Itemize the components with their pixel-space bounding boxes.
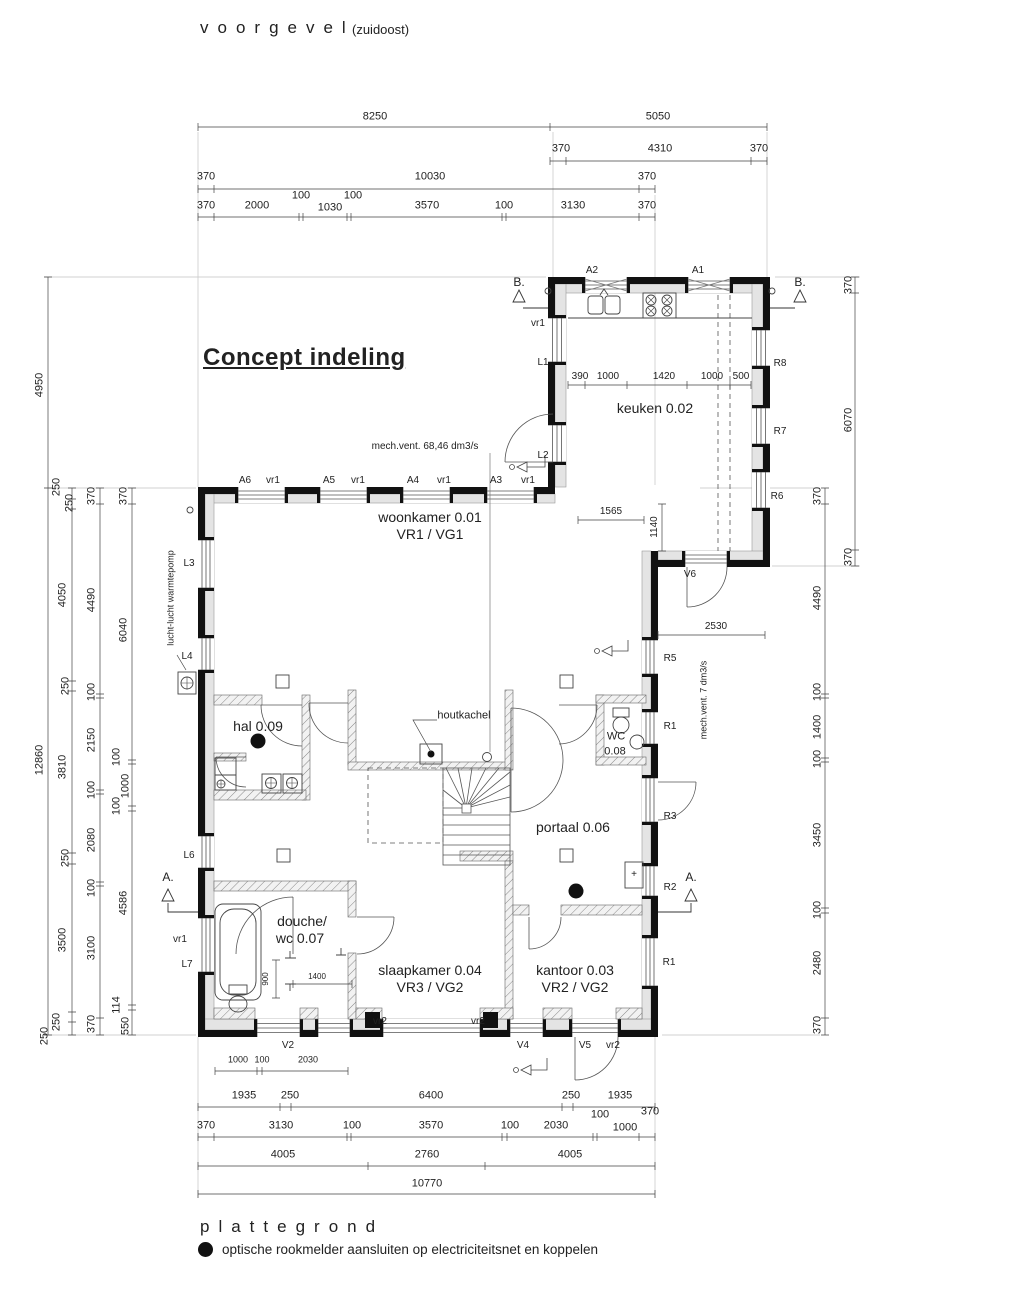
dim-label: 1935 (232, 1091, 256, 1102)
room-label-kantoor-sub: VR2 / VG2 (542, 980, 609, 994)
wc-toilet (613, 708, 644, 749)
dim-label: 250 (40, 1027, 51, 1045)
annotation-houtkachel: houtkachel (437, 711, 490, 722)
window-label: L4 (181, 652, 192, 662)
room-label-woonkamer: woonkamer 0.01 (378, 510, 482, 524)
dim-label: 100 (495, 201, 513, 212)
plus-box-label: + (631, 870, 637, 880)
window-label: A1 (692, 266, 704, 276)
dim-label: 1000 (613, 1123, 637, 1134)
window-label: R2 (664, 883, 677, 893)
dim-label: 100 (813, 901, 824, 919)
vent-label: vr1 (521, 476, 535, 486)
dim-label: 370 (87, 1015, 98, 1033)
room-label-slaapkamer-sub: VR3 / VG2 (397, 980, 464, 994)
vent-label: vr2 (606, 1041, 620, 1051)
smoke-detector-legend-icon (198, 1242, 213, 1257)
dim-label: 114 (112, 996, 123, 1014)
dim-label: 2150 (87, 728, 98, 752)
dim-label: 1565 (600, 507, 622, 517)
dim-label: 500 (733, 372, 750, 382)
dim-label: 4005 (558, 1150, 582, 1161)
dim-label: 1935 (608, 1091, 632, 1102)
dim-label: 100 (87, 683, 98, 701)
dim-label: 1140 (650, 516, 660, 538)
legend-row: optische rookmelder aansluiten op electr… (198, 1242, 598, 1257)
dim-label: 4950 (35, 373, 46, 397)
dim-label: 250 (562, 1091, 580, 1102)
section-marker-label: B. (794, 276, 805, 288)
dim-label: 2480 (813, 951, 824, 975)
dim-label: 1400 (813, 715, 824, 739)
shower-fittings (285, 948, 346, 991)
dim-label: 1000 (597, 372, 619, 382)
dim-label: 250 (281, 1091, 299, 1102)
vent-label: vr2 (373, 1017, 387, 1027)
dim-label: 900 (262, 972, 270, 985)
vent-label: vr1 (266, 476, 280, 486)
room-label-keuken: keuken 0.02 (617, 401, 693, 415)
annotation-heatpump: lucht-lucht warmtepomp (167, 550, 176, 646)
dim-label: 100 (87, 879, 98, 897)
dim-label: 6400 (419, 1091, 443, 1102)
vent-label: vr2 (471, 1017, 485, 1027)
dim-label: 100 (112, 797, 123, 815)
vent-label: vr1 (173, 935, 187, 945)
dim-label: 1000 (701, 372, 723, 382)
window-label: R5 (664, 654, 677, 664)
dim-label: 2530 (705, 622, 727, 632)
bathtub (215, 904, 261, 1000)
facade-title: voorgevel (200, 18, 355, 38)
plan-title: plattegrond (200, 1217, 384, 1237)
floorplan-drawing (0, 0, 1024, 1302)
kitchen-stove (643, 293, 676, 318)
dim-label: 370 (750, 144, 768, 155)
dim-label: 370 (197, 172, 215, 183)
section-marker-label: B. (513, 276, 524, 288)
dim-label: 100 (813, 750, 824, 768)
dim-label: 370 (119, 487, 130, 505)
room-label-douche-sub: wc 0.07 (276, 931, 324, 945)
dim-label: 10770 (412, 1179, 443, 1190)
vent-label: vr1 (437, 476, 451, 486)
dim-label: 250 (52, 478, 63, 496)
dim-label: 2760 (415, 1150, 439, 1161)
window-label: R8 (774, 359, 787, 369)
annotation-mech-vent: mech.vent. 7 dm3/s (700, 661, 709, 740)
dim-label: 5050 (646, 112, 670, 123)
window-label: L3 (183, 559, 194, 569)
dim-label: 100 (254, 1056, 269, 1065)
dim-label: 250 (52, 1013, 63, 1031)
window-label: L2 (537, 451, 548, 461)
wood-stove (413, 720, 492, 764)
window-label: R1 (664, 722, 677, 732)
dim-label: 3810 (58, 755, 69, 779)
concept-title: Concept indeling (203, 344, 406, 372)
dim-label: 3130 (561, 201, 585, 212)
dim-label: 370 (641, 1107, 659, 1118)
smoke-detectors (251, 734, 584, 899)
window-label: A2 (586, 266, 598, 276)
dim-label: 550 (121, 1017, 132, 1035)
dim-label: 3100 (87, 936, 98, 960)
window-label: A4 (407, 476, 419, 486)
facade-subtitle: (zuidoost) (352, 22, 409, 37)
dim-label: 370 (552, 144, 570, 155)
section-markers (162, 290, 806, 912)
dim-label: 6040 (119, 618, 130, 642)
dim-label: 2030 (298, 1056, 318, 1065)
vent-label: vr1 (351, 476, 365, 486)
vent-label: vr1 (531, 319, 545, 329)
window-label: R3 (664, 812, 677, 822)
dim-label: 100 (292, 191, 310, 202)
room-label-kantoor: kantoor 0.03 (536, 963, 614, 977)
section-marker-label: A. (162, 871, 173, 883)
dim-label: 370 (197, 1121, 215, 1132)
room-label-hal: hal 0.09 (233, 719, 283, 733)
room-label-wc-sub: 0.08 (604, 747, 625, 758)
room-label-wc: WC (607, 732, 625, 743)
window-label: A3 (490, 476, 502, 486)
dim-label: 100 (87, 781, 98, 799)
window-label: L1 (537, 358, 548, 368)
dim-label: 1000 (228, 1056, 248, 1065)
section-marker-label: A. (685, 871, 696, 883)
dim-label: 370 (813, 487, 824, 505)
dim-label: 3500 (58, 928, 69, 952)
window-label: R1 (663, 958, 676, 968)
dim-label: 2080 (87, 828, 98, 852)
room-label-woonkamer-sub: VR1 / VG1 (397, 527, 464, 541)
dim-label: 4005 (271, 1150, 295, 1161)
window-label: V6 (684, 570, 696, 580)
dim-label: 12860 (35, 745, 46, 776)
dim-label: 3130 (269, 1121, 293, 1132)
dim-label: 3450 (813, 823, 824, 847)
room-label-portaal: portaal 0.06 (536, 820, 610, 834)
dim-label: 370 (638, 172, 656, 183)
dim-label: 250 (65, 494, 76, 512)
dim-label: 390 (572, 372, 589, 382)
dim-label: 100 (813, 683, 824, 701)
dim-label: 3570 (415, 201, 439, 212)
dim-label: 370 (844, 276, 855, 294)
dim-label: 8250 (363, 112, 387, 123)
window-label: L7 (181, 960, 192, 970)
legend-text: optische rookmelder aansluiten op electr… (222, 1242, 598, 1257)
dim-label: 100 (343, 1121, 361, 1132)
dim-label: 3570 (419, 1121, 443, 1132)
dim-label: 1030 (318, 203, 342, 214)
dim-label: 4586 (119, 891, 130, 915)
dim-label: 100 (501, 1121, 519, 1132)
dim-label: 1000 (121, 774, 132, 798)
stairs (443, 768, 510, 865)
dim-label: 6070 (844, 408, 855, 432)
dim-label: 1400 (308, 973, 326, 981)
window-label: A5 (323, 476, 335, 486)
floorplan-page: voorgevel (zuidoost) Concept indeling pl… (0, 0, 1024, 1302)
dim-label: 100 (591, 1110, 609, 1121)
window-label: V4 (517, 1041, 529, 1051)
dim-label: 370 (87, 487, 98, 505)
dim-label: 4050 (58, 583, 69, 607)
meter-cabinet (215, 758, 236, 790)
dim-label: 10030 (415, 172, 446, 183)
dim-label: 370 (844, 548, 855, 566)
room-label-slaapkamer: slaapkamer 0.04 (378, 963, 482, 977)
window-label: R7 (774, 427, 787, 437)
window-label: V5 (579, 1041, 591, 1051)
dim-label: 4310 (648, 144, 672, 155)
dim-label: 370 (197, 201, 215, 212)
window-label: L6 (183, 851, 194, 861)
window-label: V2 (282, 1041, 294, 1051)
dim-label: 100 (344, 191, 362, 202)
annotation-mech-vent: mech.vent. 68,46 dm3/s (372, 442, 479, 452)
dim-label: 250 (61, 677, 72, 695)
dim-label: 1420 (653, 372, 675, 382)
dim-label: 2030 (544, 1121, 568, 1132)
dim-label: 4490 (813, 586, 824, 610)
dim-label: 370 (813, 1016, 824, 1034)
dim-label: 370 (638, 201, 656, 212)
window-label: A6 (239, 476, 251, 486)
dim-label: 2000 (245, 201, 269, 212)
dim-label: 250 (61, 849, 72, 867)
room-label-douche: douche/ (277, 914, 327, 928)
dim-label: 4490 (87, 588, 98, 612)
window-label: R6 (771, 492, 784, 502)
dim-label: 100 (112, 748, 123, 766)
